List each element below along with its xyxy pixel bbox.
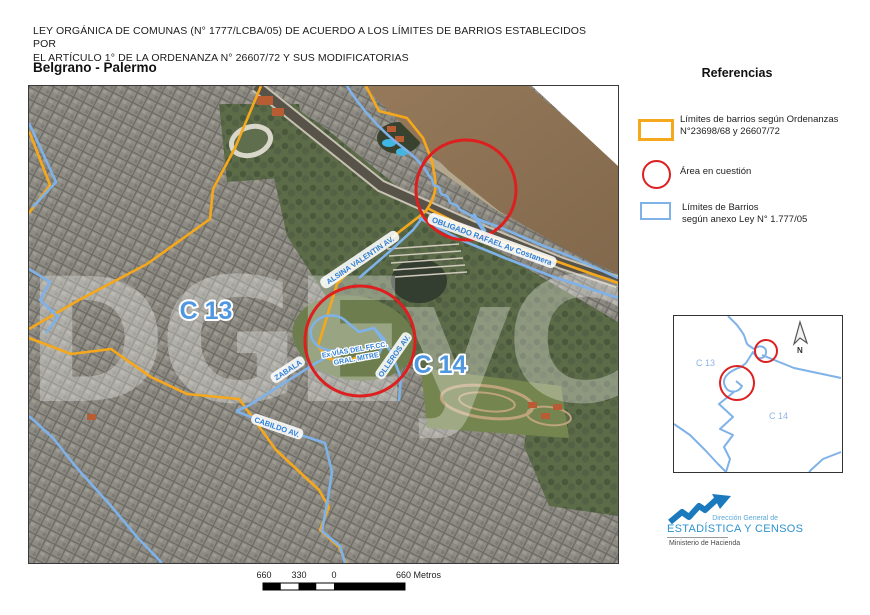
legend-swatch-ley <box>640 202 671 220</box>
legend-item-area-line1: Área en cuestión <box>680 166 751 177</box>
logo-ministerio-text: Ministerio de Hacienda <box>669 540 740 547</box>
map-subtitle: Belgrano - Palermo <box>33 60 157 75</box>
comuna-14-label: C 14 <box>414 351 467 379</box>
inset-canvas: C 13 C 14 N <box>674 316 842 472</box>
scale-label-0: 0 <box>331 570 336 580</box>
legend-item-ley-line2: según anexo Ley N° 1.777/05 <box>682 214 807 225</box>
comuna-13-label: C 13 <box>180 297 233 325</box>
inset-c13-label: C 13 <box>696 358 715 368</box>
legend-item-area: Área en cuestión <box>680 166 865 178</box>
logo-estadistica-text: ESTADÍSTICA Y CENSOS <box>667 523 803 535</box>
logo-direccion-text: Dirección General de <box>645 515 778 522</box>
scale-label-660-metros: 660 Metros <box>396 570 442 580</box>
north-arrow-icon <box>794 322 807 344</box>
scale-label-330: 330 <box>291 570 306 580</box>
legend-swatch-ordenanzas <box>638 119 674 141</box>
legend-item-ordenanzas-line2: N°23698/68 y 26607/72 <box>680 126 780 137</box>
inset-c14-label: C 14 <box>769 411 788 421</box>
north-arrow-label: N <box>797 346 803 355</box>
inset-boundaries <box>674 316 841 472</box>
legend-item-ordenanzas: Límites de barrios según Ordenanzas N°23… <box>680 114 865 139</box>
legend-title: Referencias <box>620 66 854 80</box>
map-document-page: LEY ORGÁNICA DE COMUNAS (N° 1777/LCBA/05… <box>0 0 870 615</box>
legend-item-ordenanzas-line1: Límites de barrios según Ordenanzas <box>680 114 838 125</box>
scale-label-660-left: 660 <box>256 570 271 580</box>
scale-bar: 660 330 0 660 Metros <box>230 566 460 600</box>
logo-divider <box>667 537 728 538</box>
dgeyc-watermark: DGEyC <box>29 241 618 442</box>
inset-locator-map: C 13 C 14 N <box>673 315 843 473</box>
map-canvas: DGEyC <box>29 86 618 563</box>
title-line-1: LEY ORGÁNICA DE COMUNAS (N° 1777/LCBA/05… <box>33 25 586 50</box>
satellite-map: DGEyC <box>28 85 619 564</box>
legend-swatch-area <box>642 160 671 189</box>
legend-item-ley: Límites de Barrios según anexo Ley N° 1.… <box>682 202 867 227</box>
legend-item-ley-line1: Límites de Barrios <box>682 202 759 213</box>
